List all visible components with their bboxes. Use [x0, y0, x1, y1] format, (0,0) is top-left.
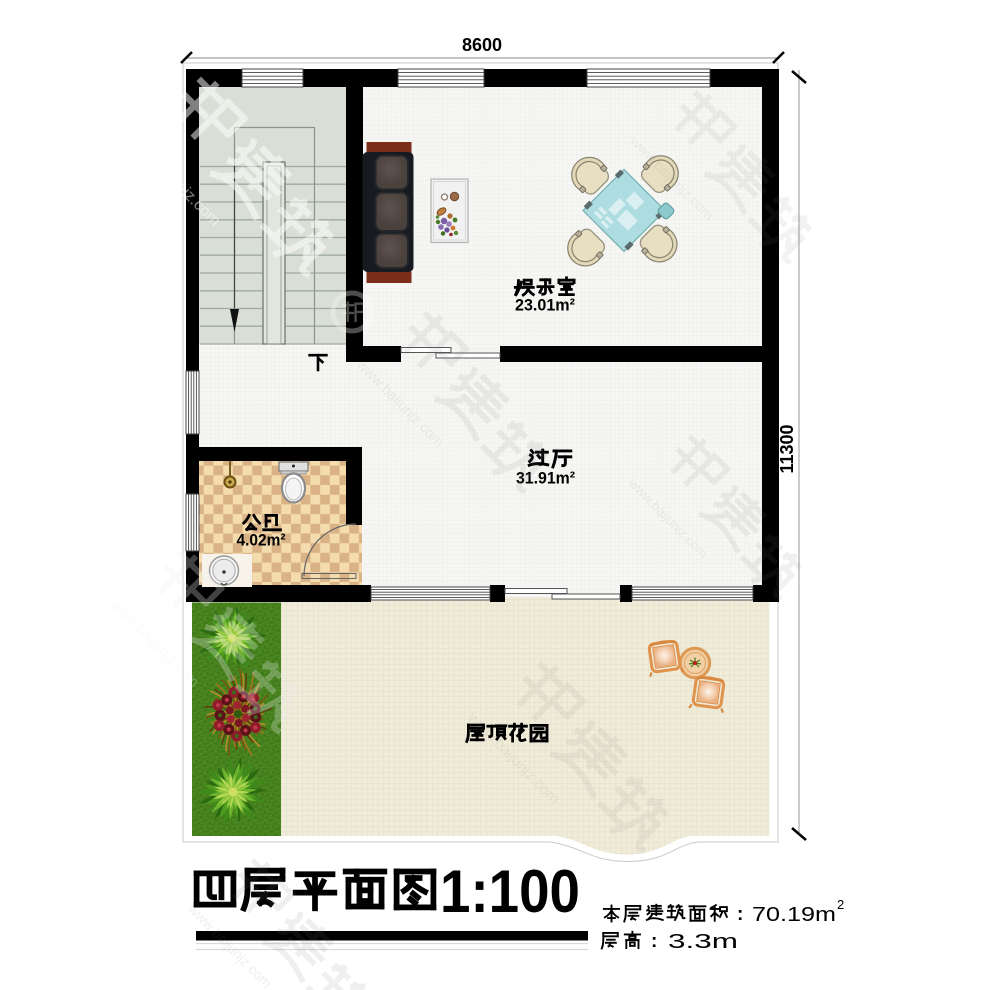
svg-text::: :: [737, 904, 743, 925]
svg-text:3.3m: 3.3m: [668, 931, 738, 953]
svg-text:4.02m²: 4.02m²: [237, 531, 286, 550]
svg-text:11300: 11300: [777, 424, 797, 473]
svg-text:1:100: 1:100: [440, 858, 580, 925]
svg-text::: :: [651, 931, 657, 952]
svg-text:8600: 8600: [462, 35, 502, 55]
svg-text:70.19m: 70.19m: [752, 904, 836, 926]
svg-text:23.01m²: 23.01m²: [515, 296, 575, 315]
svg-text:2: 2: [837, 897, 844, 912]
svg-text:www.baijunjz.com: www.baijunjz.com: [184, 900, 275, 990]
